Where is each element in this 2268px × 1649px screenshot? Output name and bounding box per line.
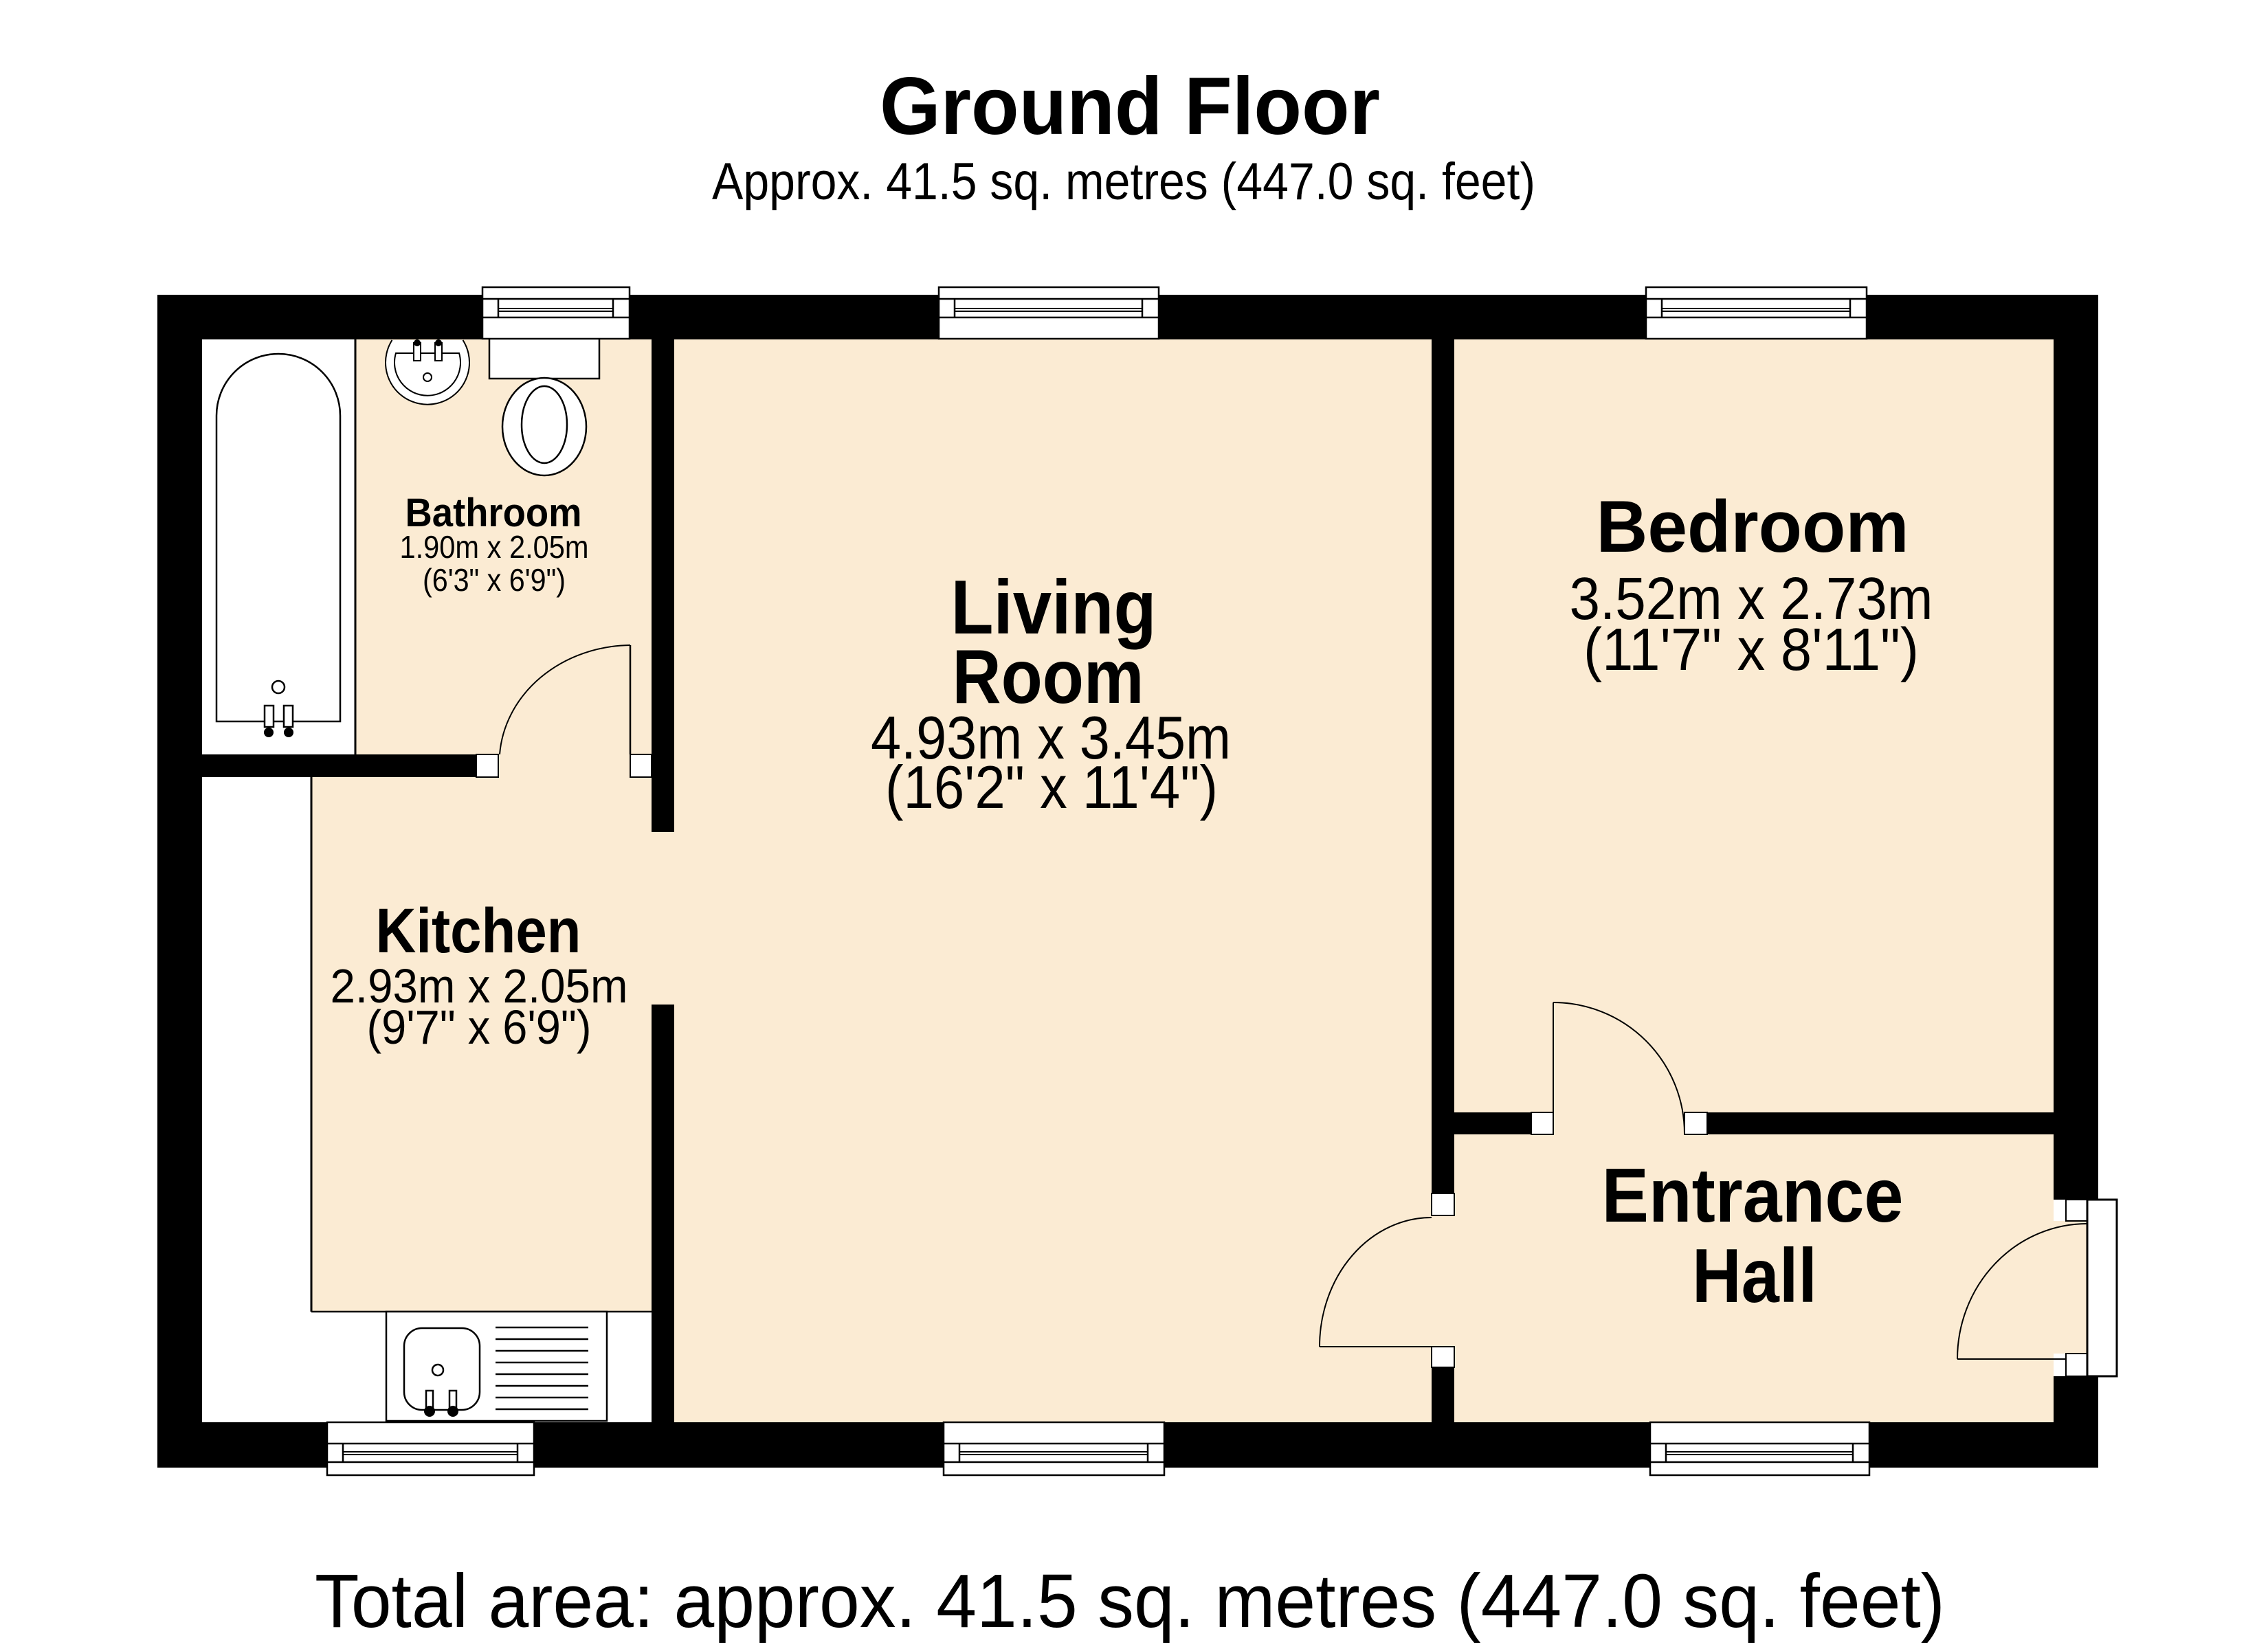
svg-text:Bedroom: Bedroom: [1597, 485, 1909, 568]
svg-text:(9'7" x 6'9"): (9'7" x 6'9"): [367, 1000, 592, 1054]
svg-text:(6'3" x 6'9"): (6'3" x 6'9"): [423, 562, 566, 598]
svg-text:Approx. 41.5 sq. metres (447.0: Approx. 41.5 sq. metres (447.0 sq. feet): [712, 153, 1535, 211]
svg-text:Entrance: Entrance: [1602, 1153, 1904, 1238]
svg-text:Total area: approx. 41.5 sq. m: Total area: approx. 41.5 sq. metres (447…: [315, 1559, 1945, 1644]
svg-text:1.90m x 2.05m: 1.90m x 2.05m: [400, 529, 589, 565]
svg-text:Kitchen: Kitchen: [376, 896, 581, 966]
svg-text:Ground Floor: Ground Floor: [880, 60, 1380, 152]
svg-text:Hall: Hall: [1692, 1233, 1817, 1319]
svg-text:(11'7" x 8'11"): (11'7" x 8'11"): [1583, 616, 1919, 683]
svg-text:(16'2" x 11'4"): (16'2" x 11'4"): [885, 753, 1218, 821]
